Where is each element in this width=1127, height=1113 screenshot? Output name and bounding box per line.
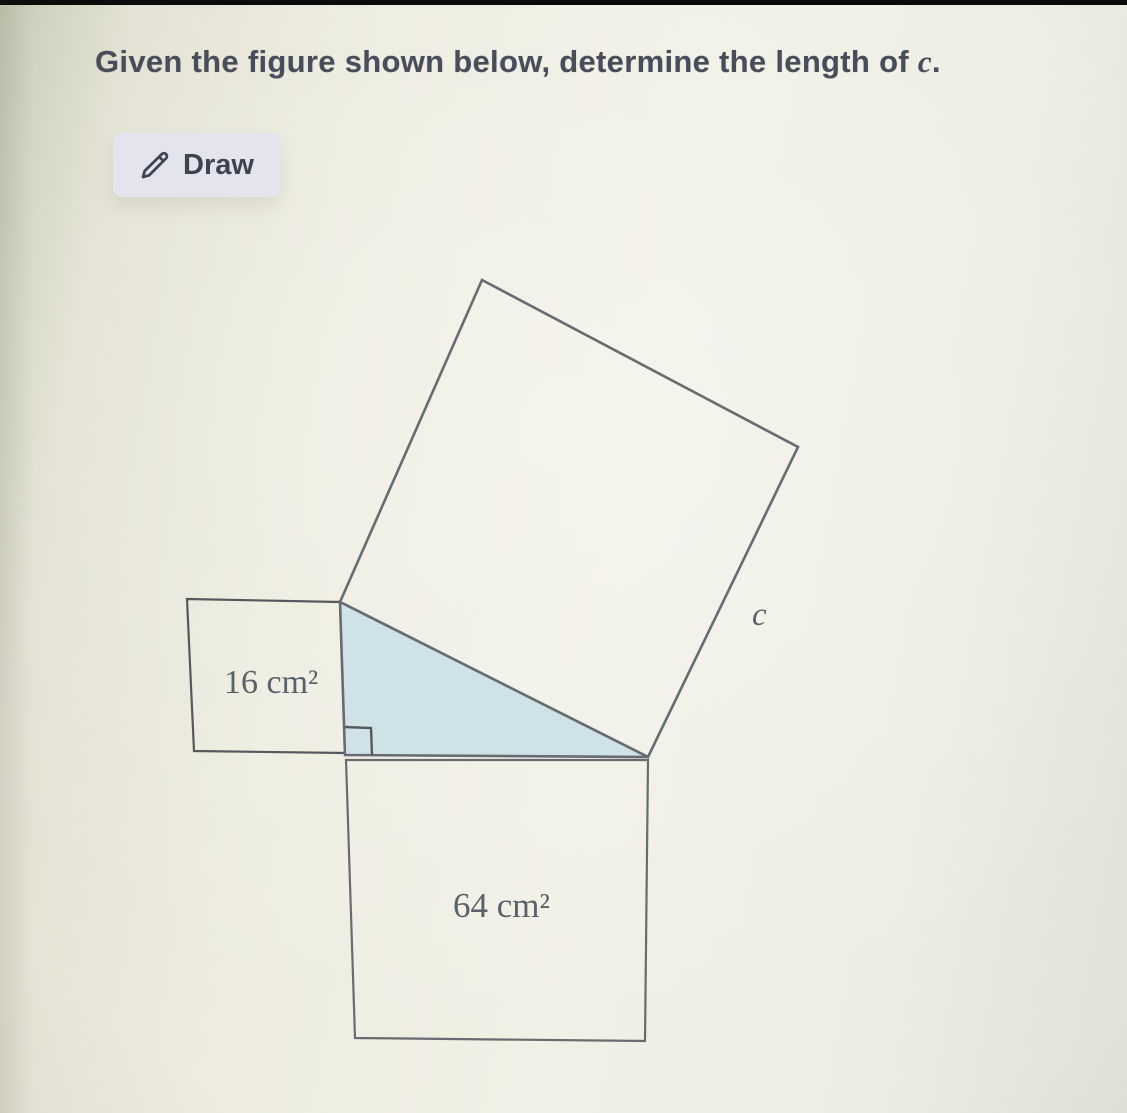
hypotenuse-label: c xyxy=(752,597,767,634)
area-label-16: 16 cm² xyxy=(224,664,318,702)
pythagorean-figure xyxy=(0,0,1127,1113)
screen-edge-top xyxy=(0,0,1127,5)
app-screen: Given the figure shown below, determine … xyxy=(0,0,1127,1113)
right-triangle xyxy=(340,602,648,757)
area-label-64: 64 cm² xyxy=(453,886,550,926)
